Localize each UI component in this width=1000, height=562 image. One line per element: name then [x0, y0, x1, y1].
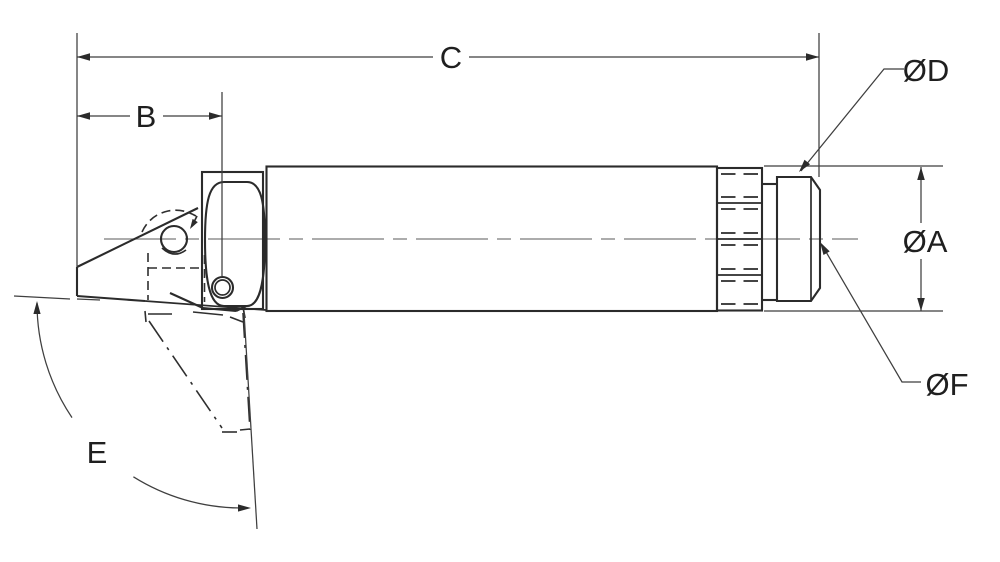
cam-contact-arrow [190, 219, 198, 229]
dim-label-d: ØD [903, 53, 950, 88]
dim-label-b: B [136, 99, 157, 134]
dimension-b: B [77, 92, 222, 276]
dim-label-f: ØF [925, 367, 968, 402]
leader-f: ØF [820, 242, 969, 402]
leader-d: ØD [799, 53, 949, 172]
technical-drawing-canvas: C B ØA ØD ØF E [0, 0, 1000, 562]
dim-label-c: C [440, 40, 462, 75]
part-knurled-ring [717, 168, 762, 311]
drawing-sheet: C B ØA ØD ØF E [0, 0, 1000, 562]
dimension-c: C [77, 33, 819, 267]
part-clamp-head [202, 172, 265, 309]
part-nozzle-wedge [77, 208, 266, 318]
dimension-e-angle: E [14, 296, 257, 529]
dim-label-e: E [87, 435, 108, 470]
pivot-pin-inner [215, 280, 230, 295]
lever-swing-phantom [145, 311, 250, 432]
dim-label-a: ØA [903, 224, 948, 259]
